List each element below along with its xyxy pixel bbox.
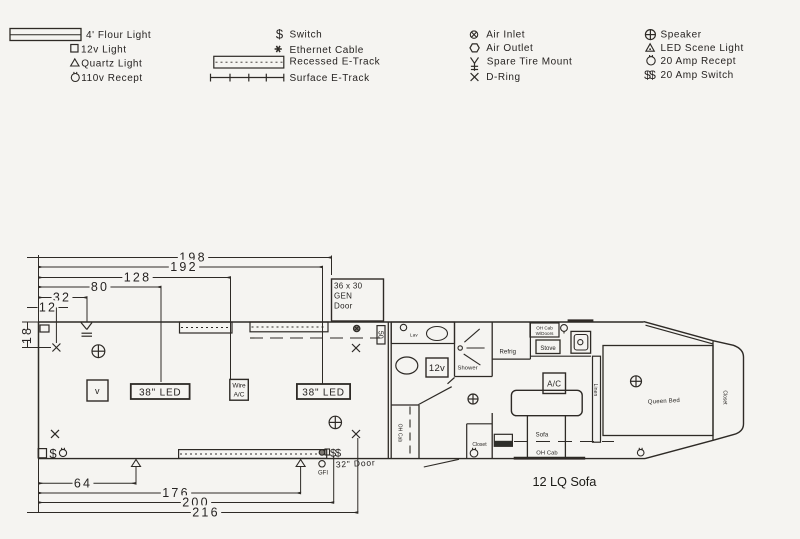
svg-text:12v: 12v bbox=[429, 363, 445, 374]
svg-text:v: v bbox=[95, 386, 100, 396]
svg-text:128: 128 bbox=[124, 271, 151, 285]
svg-text:Ethernet Cable: Ethernet Cable bbox=[290, 45, 364, 56]
svg-text:OH Cab: OH Cab bbox=[536, 451, 558, 457]
svg-text:36 x 30: 36 x 30 bbox=[334, 282, 363, 291]
svg-text:Sofa: Sofa bbox=[536, 433, 549, 439]
svg-text:OH Cab: OH Cab bbox=[536, 326, 553, 331]
svg-text:192: 192 bbox=[170, 260, 197, 274]
svg-text:Closet: Closet bbox=[721, 390, 727, 405]
svg-text:Lav: Lav bbox=[410, 333, 418, 338]
svg-text:$: $ bbox=[276, 27, 284, 42]
svg-text:Surface E-Track: Surface E-Track bbox=[290, 73, 371, 84]
svg-text:20 Amp Switch: 20 Amp Switch bbox=[661, 70, 734, 81]
svg-text:Stove: Stove bbox=[540, 346, 556, 352]
svg-text:D-Ring: D-Ring bbox=[486, 72, 520, 83]
svg-text:32" Door: 32" Door bbox=[336, 457, 376, 469]
svg-text:$: $ bbox=[649, 68, 656, 82]
svg-text:64: 64 bbox=[74, 476, 92, 490]
svg-text:Linen: Linen bbox=[592, 384, 598, 397]
svg-text:12v Light: 12v Light bbox=[81, 44, 127, 55]
svg-text:Speaker: Speaker bbox=[661, 29, 702, 40]
svg-text:Switch: Switch bbox=[290, 29, 323, 40]
svg-text:LED Scene Light: LED Scene Light bbox=[661, 43, 744, 54]
svg-text:Spare Tire Mount: Spare Tire Mount bbox=[487, 56, 573, 67]
svg-text:38" LED: 38" LED bbox=[139, 388, 182, 399]
svg-text:18: 18 bbox=[20, 326, 34, 344]
svg-text:A/C: A/C bbox=[234, 392, 245, 399]
svg-text:Air Outlet: Air Outlet bbox=[486, 43, 533, 54]
svg-text:$: $ bbox=[49, 446, 57, 461]
svg-text:80: 80 bbox=[91, 280, 109, 294]
svg-text:GEN: GEN bbox=[334, 292, 352, 301]
svg-text:A/C: A/C bbox=[547, 380, 561, 389]
svg-text:20 Amp Recept: 20 Amp Recept bbox=[661, 56, 737, 67]
svg-text:Refrig: Refrig bbox=[500, 350, 517, 356]
svg-text:W/Doors: W/Doors bbox=[536, 331, 555, 336]
svg-text:4' Flour Light: 4' Flour Light bbox=[86, 30, 151, 41]
svg-text:Closet: Closet bbox=[472, 442, 487, 448]
svg-text:$: $ bbox=[335, 448, 341, 460]
svg-text:OH Cab: OH Cab bbox=[397, 424, 403, 443]
svg-text:Door: Door bbox=[334, 302, 353, 311]
svg-text:Recessed E-Track: Recessed E-Track bbox=[290, 56, 381, 67]
svg-text:Quartz Light: Quartz Light bbox=[81, 59, 142, 70]
svg-text:Wire: Wire bbox=[232, 383, 246, 390]
svg-text:50: 50 bbox=[377, 331, 384, 339]
svg-text:Shower: Shower bbox=[458, 366, 478, 372]
svg-text:110v Recept: 110v Recept bbox=[81, 73, 142, 84]
svg-text:12: 12 bbox=[39, 301, 57, 315]
svg-text:12 LQ Sofa: 12 LQ Sofa bbox=[533, 474, 598, 489]
svg-text:Air Inlet: Air Inlet bbox=[486, 29, 525, 40]
svg-text:GFI: GFI bbox=[318, 471, 328, 477]
svg-text:216: 216 bbox=[192, 506, 219, 520]
svg-text:38" LED: 38" LED bbox=[302, 388, 345, 399]
